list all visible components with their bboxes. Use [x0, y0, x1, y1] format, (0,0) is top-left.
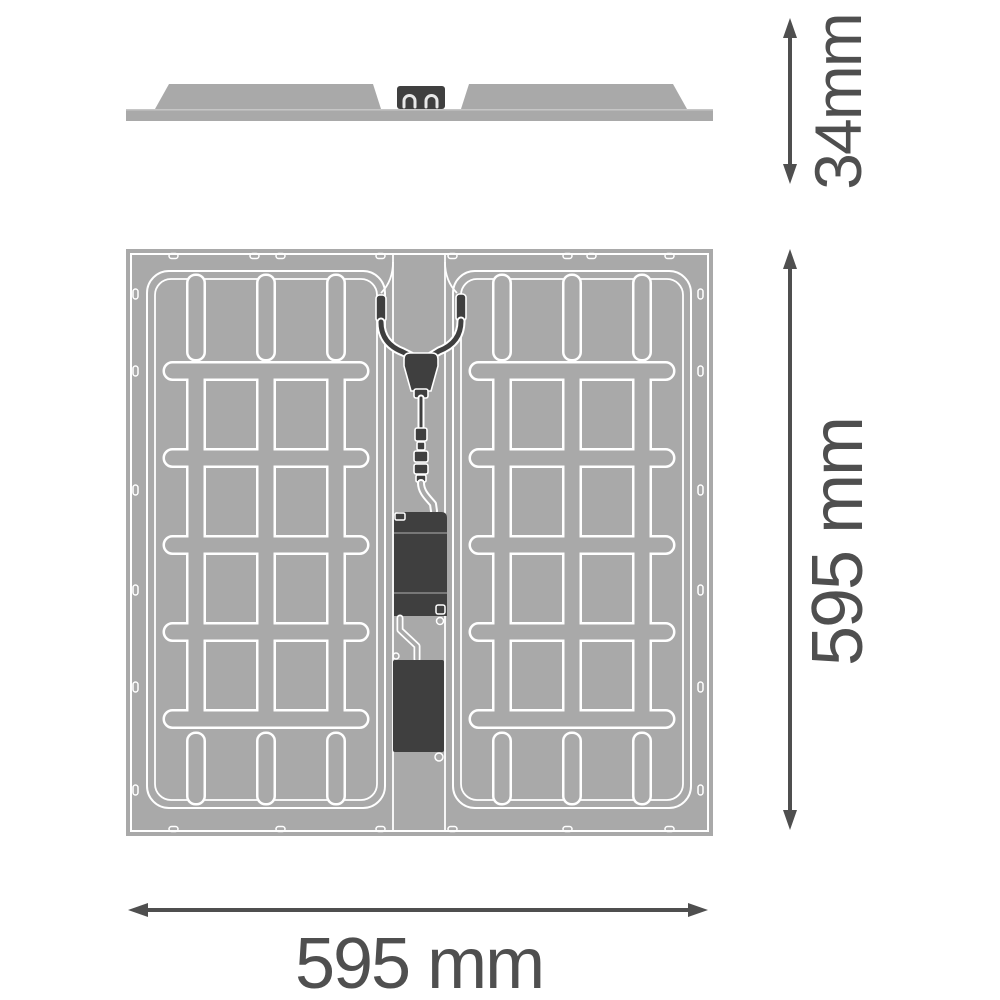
dimension-panel-width: 595 mm [128, 903, 708, 1000]
arrowhead-right-icon [688, 903, 708, 917]
drawing-page: 34mm [0, 0, 1000, 1000]
dimension-panel-height: 595 mm [783, 249, 878, 830]
profile-back-pan-left [155, 84, 381, 109]
driver-box-lower [393, 653, 444, 761]
arrowhead-up-icon [783, 18, 797, 38]
mains-plug [404, 353, 438, 391]
arrowhead-left-icon [128, 903, 148, 917]
side-profile-view [126, 84, 713, 121]
panel-dimension-drawing: 34mm [0, 0, 1000, 1000]
rear-panel-view [126, 249, 713, 836]
arrowhead-down-icon [783, 164, 797, 184]
dimension-profile-height: 34mm [783, 14, 875, 189]
arrowhead-up-icon [783, 249, 797, 269]
driver-box-upper [394, 512, 447, 616]
dimension-label-profile-height: 34mm [801, 14, 875, 189]
dimension-label-panel-height: 595 mm [798, 418, 878, 666]
profile-back-pan-right [461, 84, 687, 109]
arrowhead-down-icon [783, 810, 797, 830]
profile-base-frame [126, 109, 713, 121]
profile-terminal-block [397, 86, 445, 109]
dimension-label-panel-width: 595 mm [295, 924, 543, 1000]
inline-connector [414, 428, 428, 482]
